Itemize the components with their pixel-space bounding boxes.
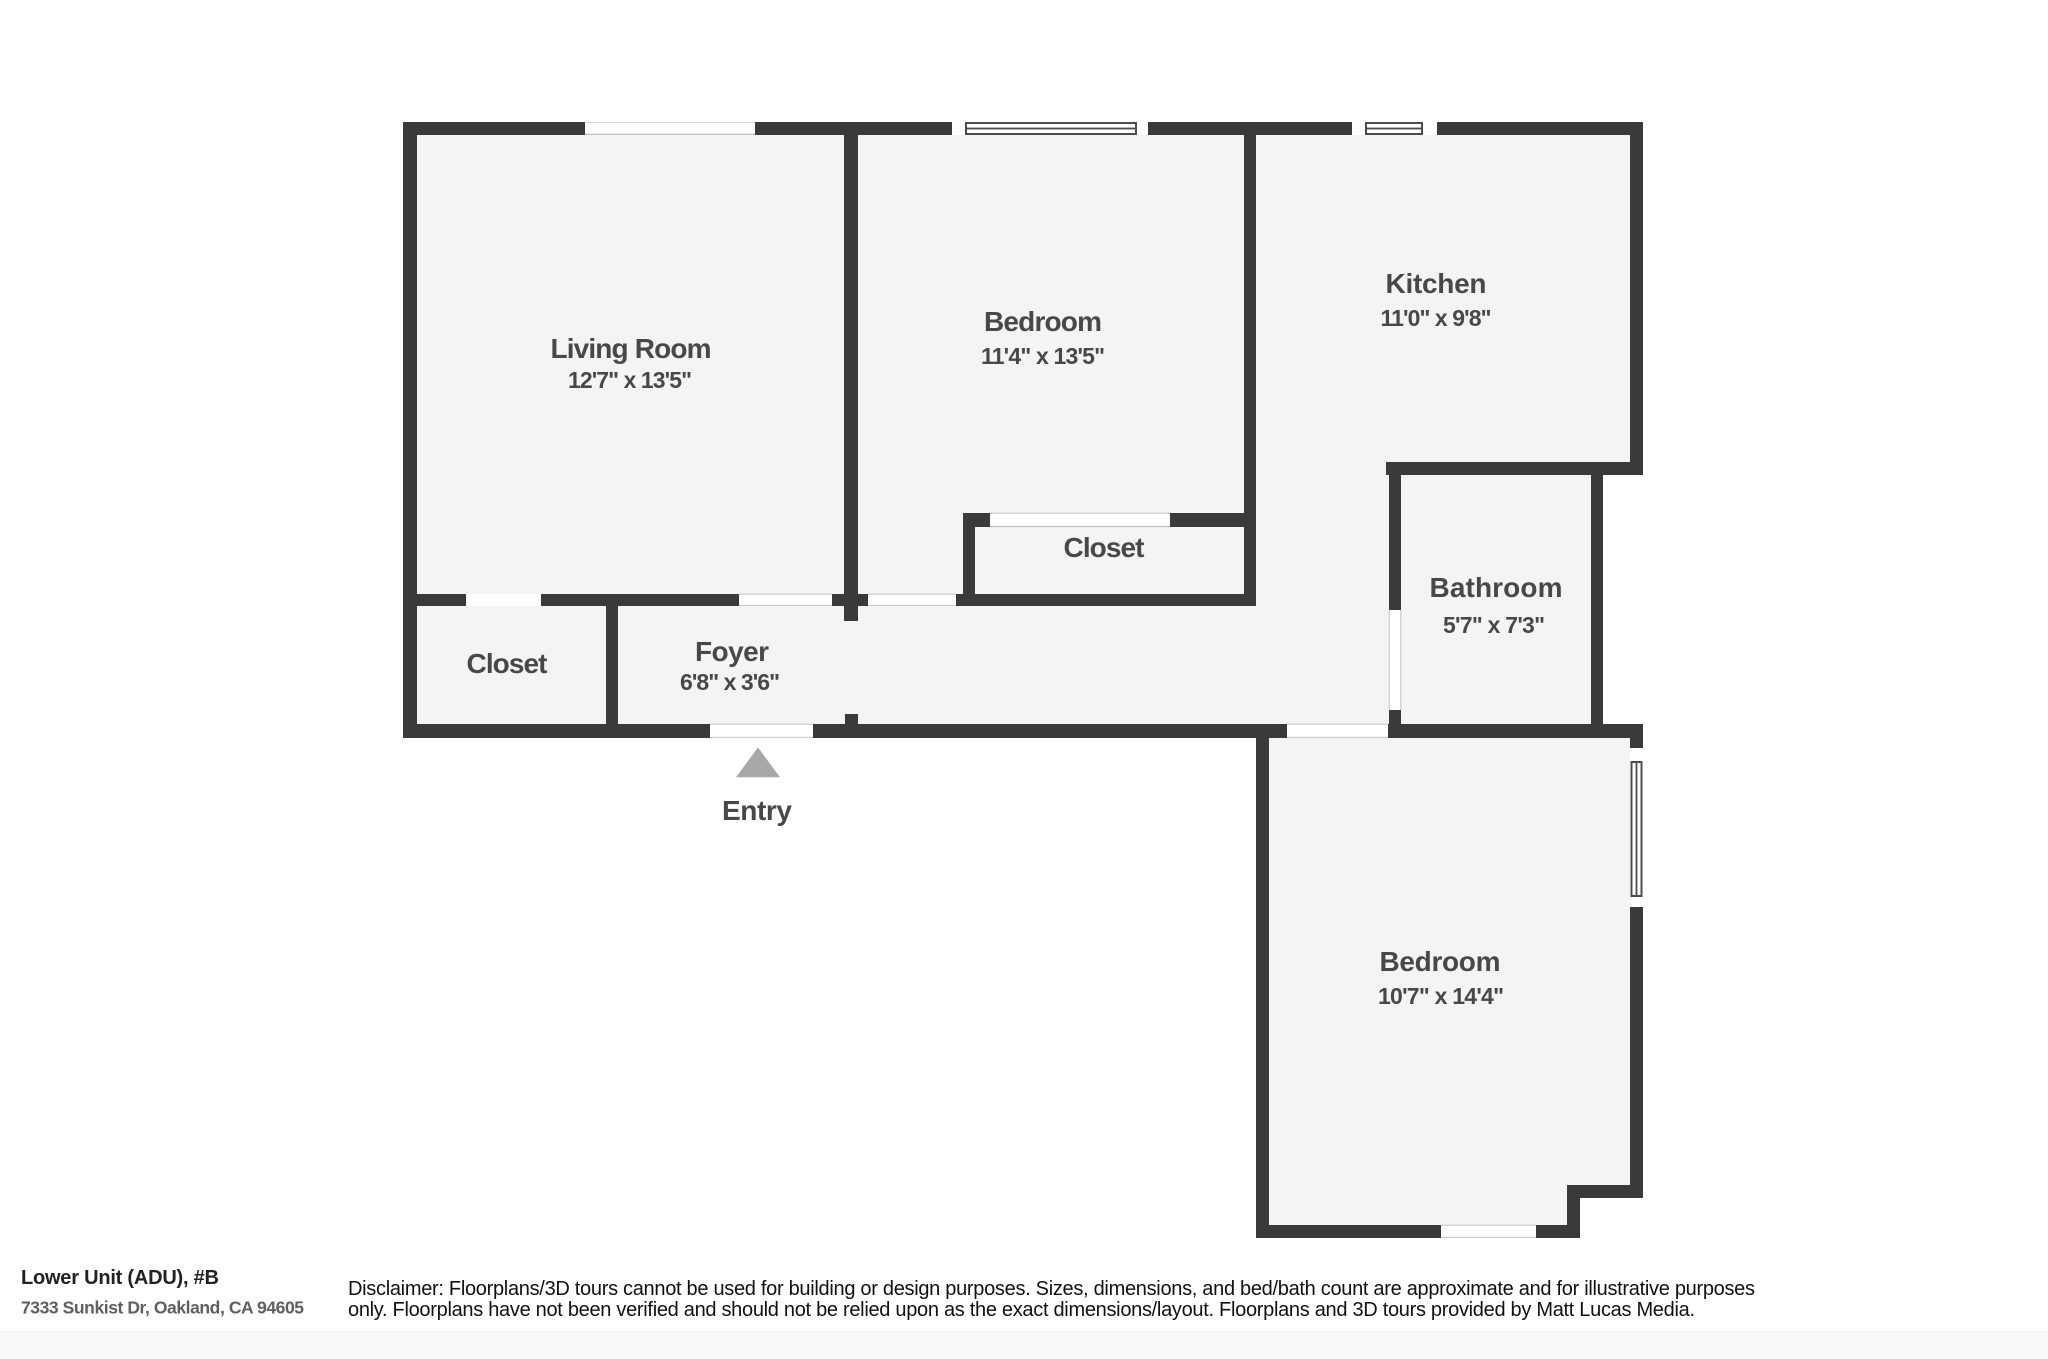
svg-text:12'7" x 13'5": 12'7" x 13'5" — [568, 367, 692, 393]
svg-text:Kitchen: Kitchen — [1386, 268, 1487, 299]
svg-text:6'8" x 3'6": 6'8" x 3'6" — [680, 669, 780, 695]
svg-text:only. Floorplans have not been: only. Floorplans have not been verified … — [348, 1299, 1695, 1321]
svg-text:Bathroom: Bathroom — [1430, 572, 1563, 603]
svg-text:Bedroom: Bedroom — [984, 306, 1102, 337]
svg-text:Lower Unit (ADU), #B: Lower Unit (ADU), #B — [21, 1267, 219, 1289]
svg-text:Entry: Entry — [722, 795, 792, 826]
svg-text:Closet: Closet — [1064, 532, 1145, 563]
svg-text:7333 Sunkist Dr, Oakland, CA 9: 7333 Sunkist Dr, Oakland, CA 94605 — [21, 1298, 304, 1318]
svg-text:Bedroom: Bedroom — [1380, 946, 1501, 977]
svg-text:10'7" x 14'4": 10'7" x 14'4" — [1378, 983, 1504, 1009]
svg-text:5'7" x 7'3": 5'7" x 7'3" — [1443, 612, 1545, 638]
svg-text:Foyer: Foyer — [695, 636, 769, 667]
svg-text:Living Room: Living Room — [551, 333, 712, 364]
svg-text:11'4" x 13'5": 11'4" x 13'5" — [981, 343, 1105, 369]
svg-text:Closet: Closet — [467, 648, 548, 679]
svg-text:Disclaimer: Floorplans/3D tour: Disclaimer: Floorplans/3D tours cannot b… — [348, 1278, 1755, 1300]
svg-text:11'0" x 9'8": 11'0" x 9'8" — [1381, 305, 1492, 331]
